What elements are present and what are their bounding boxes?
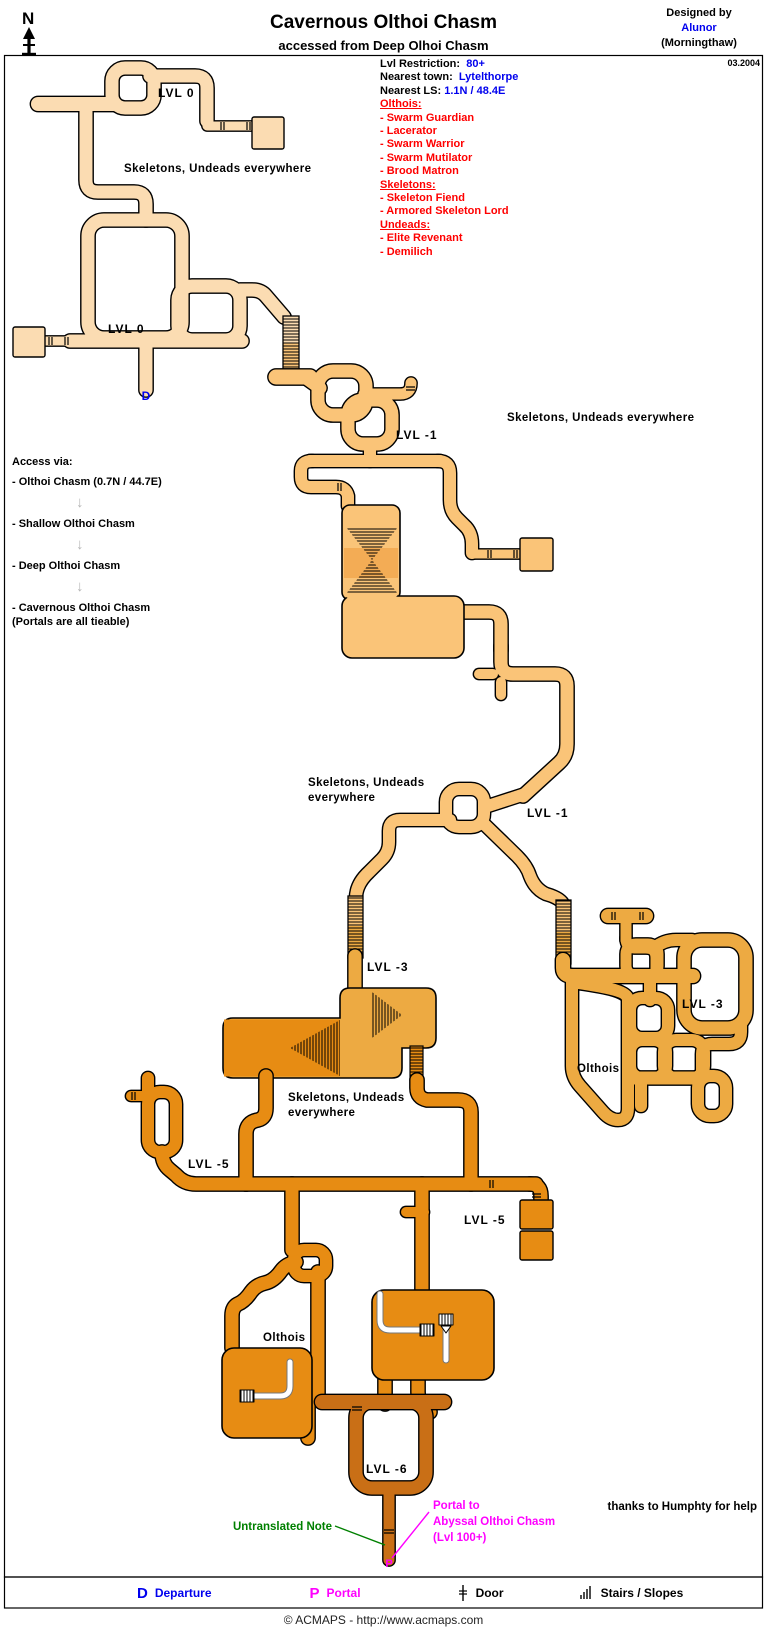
creature-item: - Demilich <box>380 246 630 259</box>
room-lvl1-east <box>520 538 553 571</box>
access-steps: - Olthoi Chasm (0.7N / 44.7E)↓- Shallow … <box>12 476 242 614</box>
annotation-untranslated-note: Untranslated Note <box>233 1521 385 1545</box>
stairs-label: Stairs / Slopes <box>601 1586 684 1600</box>
creature-groups: Olthois:- Swarm Guardian- Lacerator- Swa… <box>380 98 630 259</box>
svg-text:Portal to: Portal to <box>433 1500 480 1512</box>
label-skeletons-b: Skeletons, Undeads everywhere <box>507 412 694 424</box>
nearest-ls-label: Nearest LS: <box>380 85 441 97</box>
svg-text:Abyssal Olthoi Chasm: Abyssal Olthoi Chasm <box>433 1516 555 1528</box>
label-lvl5-a: LVL -5 <box>188 1157 230 1171</box>
footer-credit: © ACMAPS - http://www.acmaps.com <box>0 1613 767 1627</box>
label-skeletons-a: Skeletons, Undeads everywhere <box>124 163 311 175</box>
info-box: Lvl Restriction: 80+ Nearest town: Lytel… <box>380 58 630 259</box>
access-heading: Access via: <box>12 456 242 468</box>
creature-item: - Swarm Mutilator <box>380 152 630 165</box>
portal-key: P <box>310 1585 320 1602</box>
room-lvl0-west <box>13 327 45 357</box>
room-olthois-east <box>372 1290 494 1380</box>
spiral-stairs-icon <box>420 1324 434 1336</box>
access-step: - Cavernous Olthoi Chasm <box>12 602 242 614</box>
down-arrow-icon: ↓ <box>76 490 242 516</box>
label-lvl0-b: LVL 0 <box>108 322 145 336</box>
departure-marker: D <box>142 389 151 403</box>
departure-key: D <box>137 1585 148 1602</box>
nearest-town-row: Nearest town: Lytelthorpe <box>380 71 630 84</box>
room-lvl0-east <box>252 117 284 149</box>
creature-group-heading: Olthois: <box>380 98 630 111</box>
level-1-corridors <box>276 371 567 904</box>
down-arrow-icon: ↓ <box>76 574 242 600</box>
legend-portal: P Portal <box>310 1585 361 1602</box>
svg-text:Untranslated Note: Untranslated Note <box>233 1521 332 1533</box>
label-lvl5-b: LVL -5 <box>464 1213 506 1227</box>
svg-text:(Lvl 100+): (Lvl 100+) <box>433 1532 487 1544</box>
creature-item: - Swarm Warrior <box>380 138 630 151</box>
creature-item: - Brood Matron <box>380 165 630 178</box>
label-lvl1-b: LVL -1 <box>527 806 569 820</box>
nearest-ls-value: 1.1N / 48.4E <box>444 85 505 97</box>
stairs-icon <box>578 1584 594 1602</box>
creature-item: - Armored Skeleton Lord <box>380 205 630 218</box>
portal-label: Portal <box>327 1586 361 1600</box>
level-5-corridors <box>131 1076 553 1438</box>
room-lvl5-small-bottom <box>520 1231 553 1260</box>
label-lvl3-a: LVL -3 <box>367 960 409 974</box>
door-label: Door <box>476 1586 504 1600</box>
creature-group-heading: Skeletons: <box>380 179 630 192</box>
access-box: Access via: - Olthoi Chasm (0.7N / 44.7E… <box>12 456 242 628</box>
legend-departure: D Departure <box>137 1585 212 1602</box>
legend-bar: D Departure P Portal Door Stairs / Slope… <box>4 1578 763 1608</box>
label-lvl3-b: LVL -3 <box>682 997 724 1011</box>
access-step: - Shallow Olthoi Chasm <box>12 518 242 530</box>
lvl-restriction-row: Lvl Restriction: 80+ <box>380 58 630 71</box>
level-0-corridors <box>13 68 284 390</box>
door-icon <box>457 1584 469 1602</box>
access-step: - Deep Olthoi Chasm <box>12 560 242 572</box>
stairs-lvl0-to-lvl1 <box>283 316 299 369</box>
creature-item: - Skeleton Fiend <box>380 192 630 205</box>
room-lvl1-hourglass <box>342 505 464 658</box>
lvl-restriction-label: Lvl Restriction: <box>380 58 460 70</box>
room-lvl5-small-top <box>520 1200 553 1229</box>
label-lvl6: LVL -6 <box>366 1462 408 1476</box>
nearest-ls-row: Nearest LS: 1.1N / 48.4E <box>380 85 630 98</box>
level-6-corridors <box>322 1402 444 1560</box>
access-step: - Olthoi Chasm (0.7N / 44.7E) <box>12 476 242 488</box>
annotation-portal-note: Portal to Abyssal Olthoi Chasm (Lvl 100+… <box>392 1500 555 1558</box>
legend-door: Door <box>457 1584 504 1602</box>
label-map-date: 03.2004 <box>727 58 760 68</box>
label-lvl0-a: LVL 0 <box>158 86 195 100</box>
access-note: (Portals are all tieable) <box>12 616 242 628</box>
label-skeletons-c2: everywhere <box>308 792 375 804</box>
creature-item: - Lacerator <box>380 125 630 138</box>
spiral-stairs-icon <box>240 1390 254 1402</box>
label-thanks: thanks to Humphty for help <box>608 1501 758 1513</box>
creature-item: - Elite Revenant <box>380 232 630 245</box>
creature-group-heading: Undeads: <box>380 219 630 232</box>
creature-item: - Swarm Guardian <box>380 112 630 125</box>
label-skeletons-c1: Skeletons, Undeads <box>308 777 424 789</box>
legend-stairs: Stairs / Slopes <box>578 1584 684 1602</box>
portal-marker: P <box>385 1558 392 1570</box>
label-skeletons-d1: Skeletons, Undeads <box>288 1092 404 1104</box>
label-skeletons-d2: everywhere <box>288 1107 355 1119</box>
label-olthois-b: Olthois <box>263 1332 305 1344</box>
nearest-town-value: Lytelthorpe <box>459 71 519 83</box>
nearest-town-label: Nearest town: <box>380 71 453 83</box>
label-olthois-a: Olthois <box>577 1063 619 1075</box>
room-lvl3-transition <box>223 988 436 1080</box>
acmaps-dungeon-map-page: N Cavernous Olthoi Chasm accessed from D… <box>0 0 767 1636</box>
departure-label: Departure <box>155 1586 212 1600</box>
label-lvl1-a: LVL -1 <box>396 428 438 442</box>
lvl-restriction-value: 80+ <box>466 58 485 70</box>
room-olthois-west <box>222 1348 312 1438</box>
down-arrow-icon: ↓ <box>76 532 242 558</box>
